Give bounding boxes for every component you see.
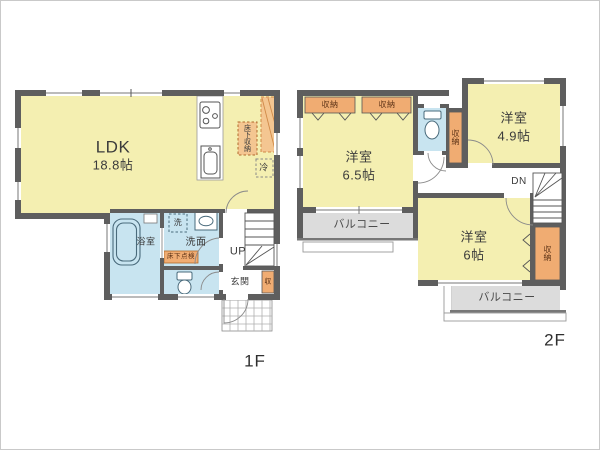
stairs-up-label: UP (230, 247, 246, 258)
washroom-label: 洗面 (186, 238, 207, 248)
entrance-storage-label: 収 (264, 279, 272, 286)
floor2-tag: 2F (544, 332, 566, 349)
hall-storage-label: 収納 (451, 129, 459, 145)
floorplan-image: LDK 18.8帖 床下収納 冷 浴室 洗 洗面 床下点検 UP 玄関 収 1F… (0, 0, 600, 450)
floor1-tag: 1F (244, 353, 266, 370)
washing-machine-label: 洗 (174, 219, 183, 227)
toilet-icon-1f (177, 272, 192, 294)
washroom-sink-icon (195, 212, 217, 230)
stairs-up (245, 213, 274, 266)
ldk-label: LDK (96, 139, 131, 156)
underfloor-access-label: 床下点検 (167, 254, 195, 261)
entrance-label: 玄関 (230, 278, 249, 287)
room49-label: 洋室 (500, 112, 527, 125)
ldk-size-label: 18.8帖 (93, 159, 134, 172)
pantry-box (261, 97, 276, 152)
room6-closet-label: 収納 (543, 245, 551, 261)
stairs-down-label: DN (511, 177, 526, 187)
room65-label: 洋室 (345, 151, 372, 164)
kitchen-sink-icon (201, 146, 220, 178)
floorplan-drawing (0, 0, 600, 450)
underfloor-storage-label: 床下収納 (244, 124, 251, 152)
room49-size-label: 4.9帖 (497, 130, 530, 143)
closet-right-label: 収納 (379, 101, 396, 109)
stove-icon (200, 102, 220, 128)
room65-size-label: 6.5帖 (342, 169, 375, 182)
refrigerator-label: 冷 (259, 164, 269, 173)
bathroom-label: 浴室 (136, 238, 155, 247)
room6-size-label: 6帖 (463, 249, 484, 262)
balcony-left-label: バルコニー (333, 220, 390, 231)
closet-left-label: 収納 (322, 101, 339, 109)
room6-label: 洋室 (460, 231, 487, 244)
stairs-down (533, 173, 562, 223)
balcony-bottom-label: バルコニー (478, 293, 535, 304)
